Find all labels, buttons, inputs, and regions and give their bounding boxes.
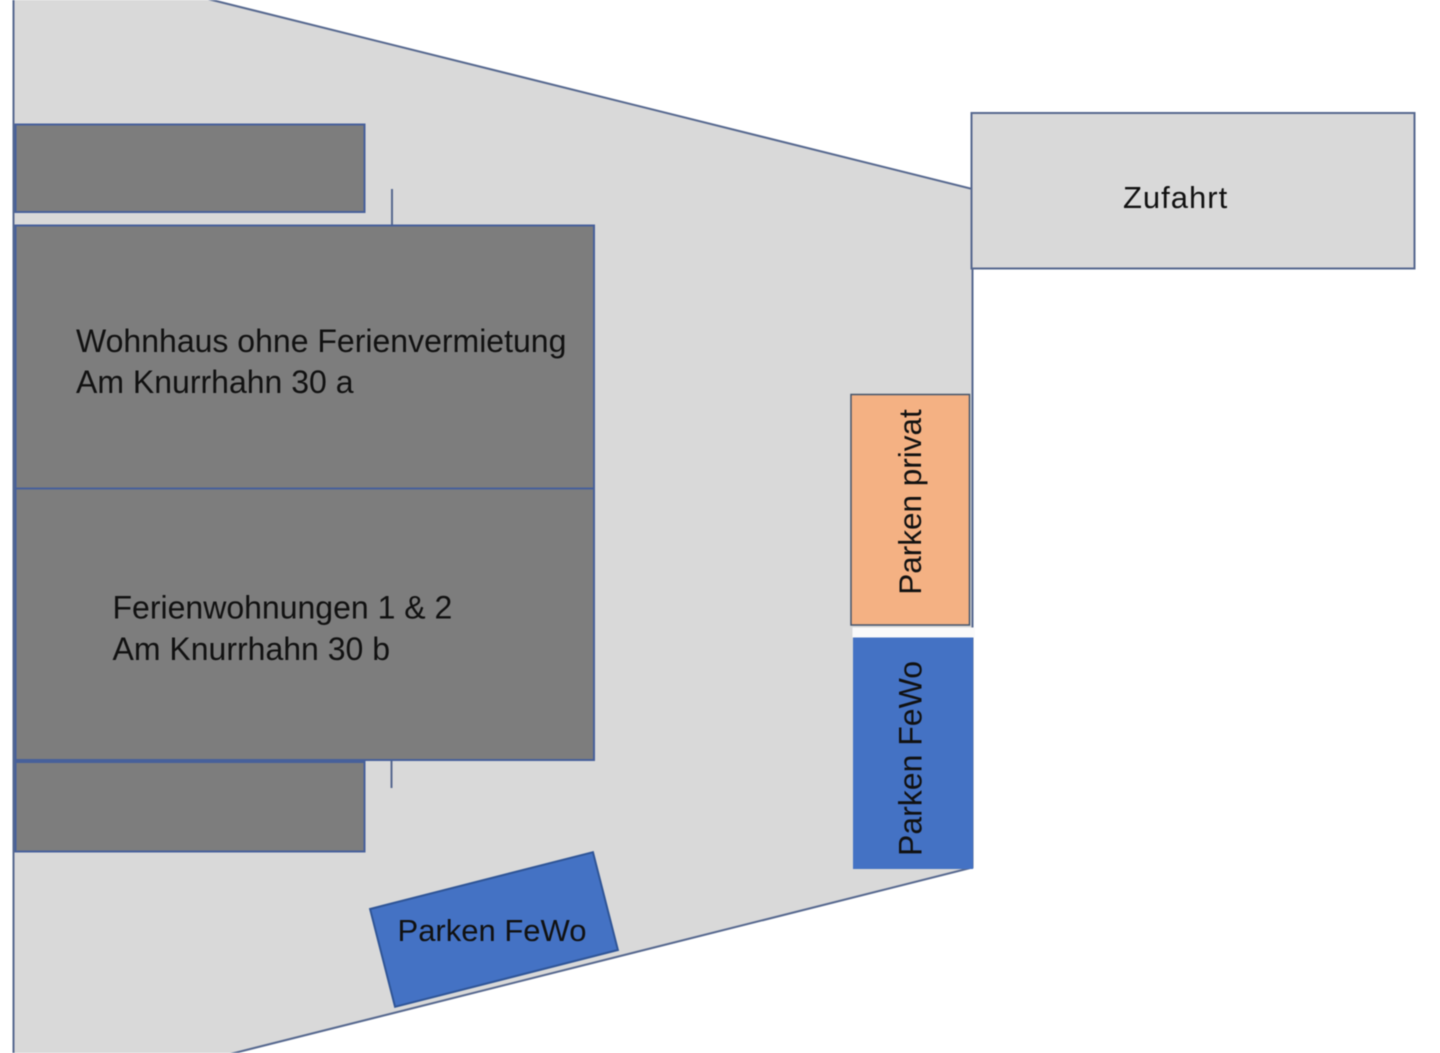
svg-text:Parken privat: Parken privat: [892, 409, 928, 595]
svg-text:Parken FeWo: Parken FeWo: [398, 913, 587, 948]
svg-text:Am Knurrhahn 30 a: Am Knurrhahn 30 a: [76, 364, 354, 400]
svg-text:Parken FeWo: Parken FeWo: [893, 661, 929, 856]
svg-text:Zufahrt: Zufahrt: [1123, 180, 1228, 215]
svg-text:Am Knurrhahn 30 b: Am Knurrhahn 30 b: [113, 631, 391, 667]
svg-text:Ferienwohnungen 1 & 2: Ferienwohnungen 1 & 2: [113, 590, 453, 626]
svg-text:Wohnhaus ohne Ferienvermietung: Wohnhaus ohne Ferienvermietung: [76, 323, 566, 359]
